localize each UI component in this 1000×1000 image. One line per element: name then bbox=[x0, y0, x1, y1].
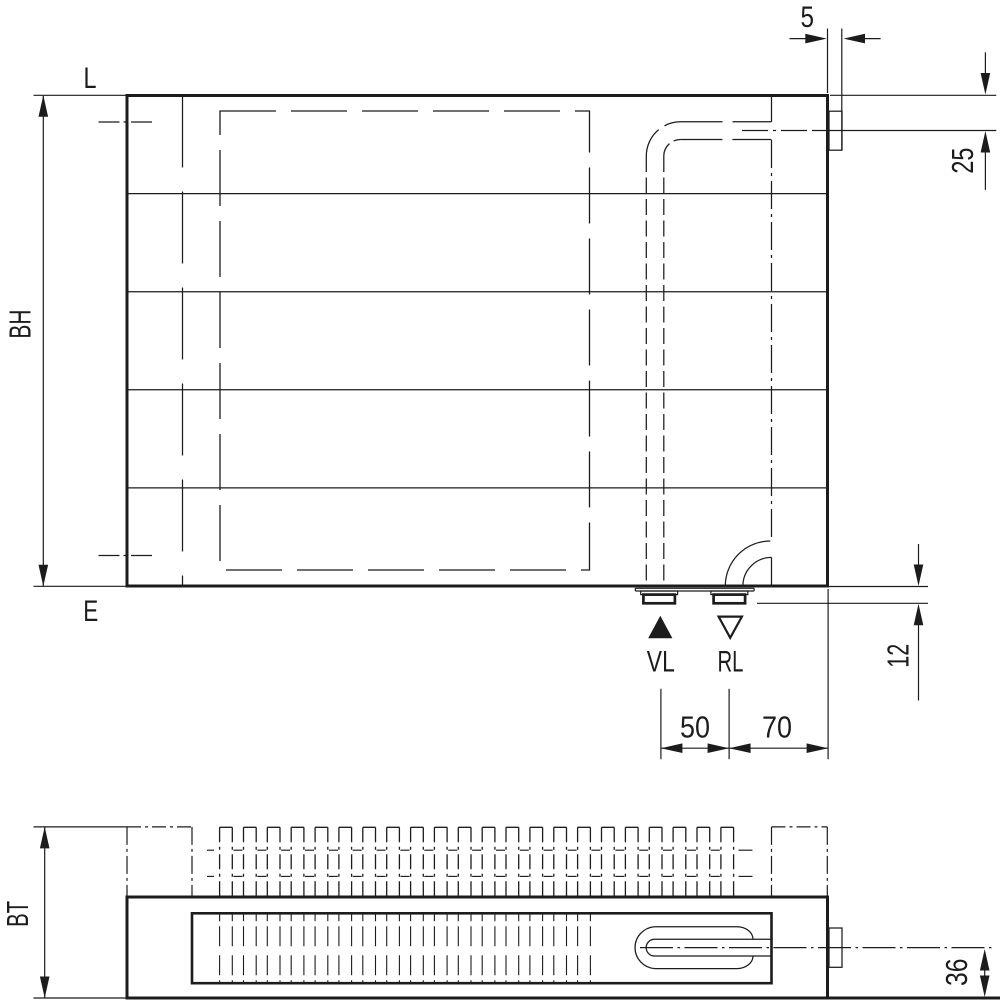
svg-text:50: 50 bbox=[680, 709, 710, 744]
svg-text:BH: BH bbox=[3, 310, 38, 339]
svg-text:RL: RL bbox=[718, 645, 744, 678]
svg-text:25: 25 bbox=[945, 148, 980, 174]
svg-text:12: 12 bbox=[881, 644, 916, 668]
svg-text:VL: VL bbox=[647, 645, 675, 678]
svg-text:E: E bbox=[83, 595, 98, 628]
svg-text:70: 70 bbox=[762, 709, 792, 744]
svg-text:L: L bbox=[84, 62, 97, 95]
svg-text:36: 36 bbox=[939, 959, 974, 987]
svg-text:BT: BT bbox=[0, 901, 35, 927]
svg-text:5: 5 bbox=[801, 1, 815, 34]
